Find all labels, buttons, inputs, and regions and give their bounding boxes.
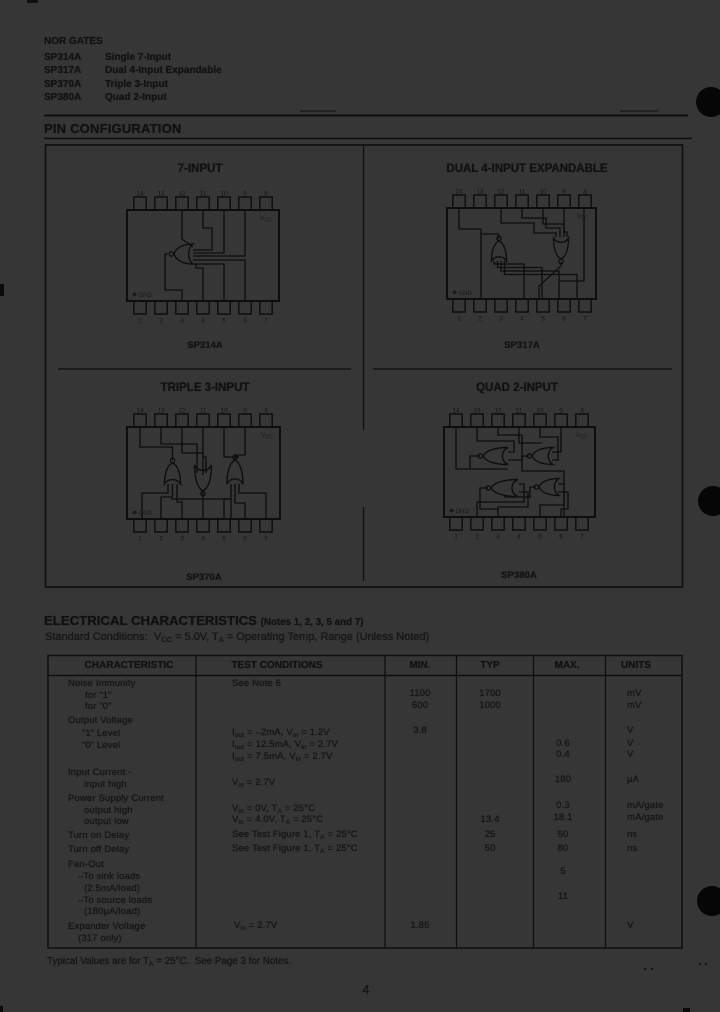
svg-text:12: 12 (178, 408, 186, 415)
svg-text:6: 6 (562, 316, 566, 323)
svg-text:9: 9 (559, 408, 563, 415)
svg-text:10: 10 (220, 408, 228, 415)
svg-text:2: 2 (159, 318, 163, 325)
svg-text:VCC: VCC (261, 432, 273, 441)
svg-text:5: 5 (222, 536, 226, 543)
svg-text:1: 1 (454, 534, 458, 541)
svg-text:3: 3 (180, 318, 184, 325)
svg-text:VDC: VDC (577, 213, 589, 222)
svg-text:7: 7 (580, 534, 584, 541)
svg-text:9: 9 (562, 189, 566, 196)
svg-text:2: 2 (475, 534, 479, 541)
svg-text:3: 3 (496, 534, 500, 541)
svg-text:GND: GND (139, 511, 153, 517)
svg-text:9: 9 (243, 191, 247, 198)
svg-text:11: 11 (200, 408, 207, 415)
svg-text:14: 14 (136, 191, 144, 198)
svg-text:3: 3 (499, 316, 503, 323)
svg-text:11: 11 (519, 189, 526, 196)
svg-text:8: 8 (264, 408, 268, 415)
svg-text:3: 3 (180, 536, 184, 543)
svg-text:4: 4 (201, 318, 205, 325)
svg-text:VCC: VCC (260, 215, 272, 224)
svg-text:6: 6 (559, 534, 563, 541)
svg-text:GND: GND (459, 291, 473, 297)
svg-text:5: 5 (541, 316, 545, 323)
svg-text:12: 12 (497, 189, 505, 196)
svg-text:5: 5 (538, 534, 542, 541)
svg-text:8: 8 (583, 189, 587, 196)
svg-text:4: 4 (201, 536, 205, 543)
svg-text:11: 11 (516, 408, 523, 415)
svg-text:1: 1 (138, 536, 142, 543)
svg-text:4: 4 (520, 316, 524, 323)
svg-text:7: 7 (583, 316, 587, 323)
svg-text:2: 2 (159, 536, 163, 543)
svg-text:6: 6 (243, 536, 247, 543)
svg-text:8: 8 (580, 408, 584, 415)
svg-text:12: 12 (178, 191, 186, 198)
svg-text:2: 2 (478, 316, 482, 323)
svg-text:11: 11 (200, 191, 207, 198)
svg-text:14: 14 (455, 189, 463, 196)
svg-text:GND: GND (456, 509, 470, 515)
svg-text:14: 14 (136, 408, 144, 415)
svg-text:5: 5 (222, 318, 226, 325)
svg-text:10: 10 (539, 189, 547, 196)
svg-text:10: 10 (220, 191, 228, 198)
svg-text:10: 10 (536, 408, 544, 415)
svg-text:7: 7 (264, 318, 268, 325)
svg-text:12: 12 (494, 408, 502, 415)
svg-text:13: 13 (473, 408, 481, 415)
svg-text:GND: GND (139, 293, 153, 299)
svg-text:8: 8 (264, 191, 268, 198)
svg-text:VCC: VCC (576, 432, 588, 441)
svg-text:4: 4 (517, 534, 521, 541)
svg-text:1: 1 (138, 318, 142, 325)
svg-text:13: 13 (157, 191, 165, 198)
svg-text:7: 7 (264, 536, 268, 543)
svg-text:6: 6 (243, 318, 247, 325)
svg-text:14: 14 (452, 408, 460, 415)
svg-text:1: 1 (457, 316, 461, 323)
svg-text:9: 9 (243, 408, 247, 415)
svg-text:13: 13 (157, 408, 165, 415)
svg-text:13: 13 (476, 189, 484, 196)
